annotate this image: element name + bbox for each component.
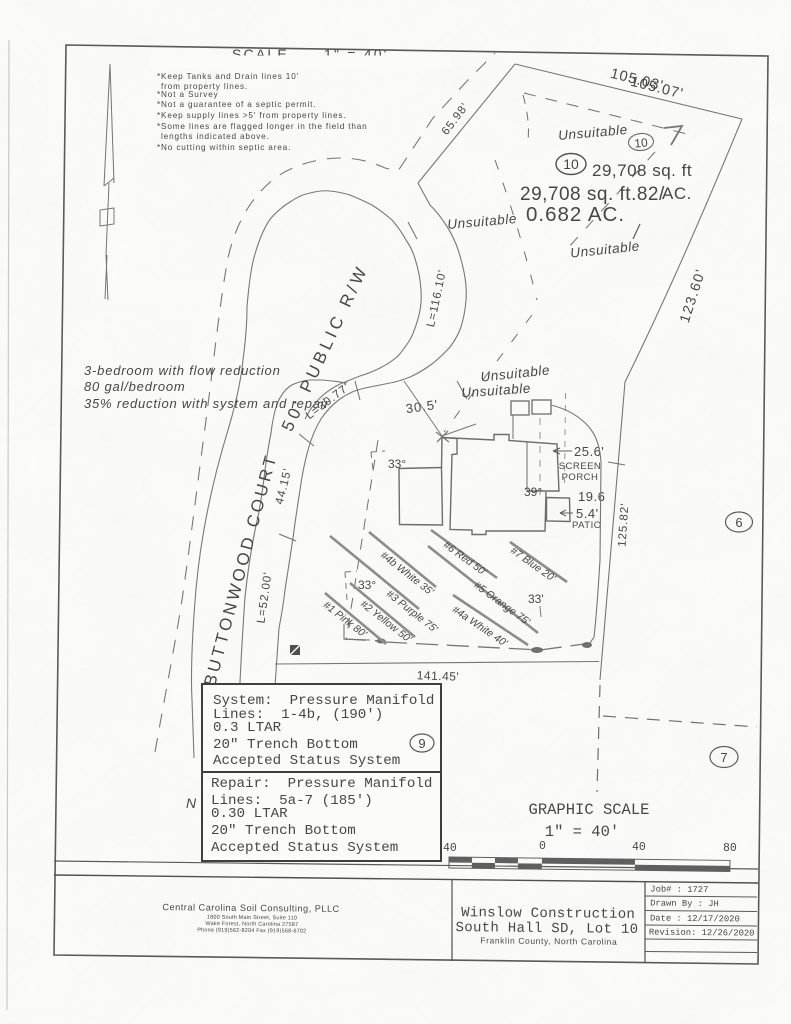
svg-text:1" = 40': 1" = 40' [545, 823, 619, 841]
svg-text:29,708 sq. ft: 29,708 sq. ft [592, 161, 692, 180]
svg-text:3-bedroom with flow reduction: 3-bedroom with flow reduction [84, 363, 281, 378]
svg-text:*Not a guarantee of a septic p: *Not a guarantee of a septic permit. [157, 100, 316, 109]
svg-text:0.3 LTAR: 0.3 LTAR [213, 720, 282, 736]
svg-text:Central Carolina Soil Consulti: Central Carolina Soil Consulting, PLLC [162, 902, 339, 914]
svg-text:lengths indicated above.: lengths indicated above. [161, 132, 270, 141]
svg-text:*Not a Survey: *Not a Survey [157, 90, 219, 99]
svg-text:Job# : 1727: Job# : 1727 [650, 884, 708, 895]
svg-text:5.4': 5.4' [576, 506, 599, 521]
svg-text:Accepted Status System: Accepted Status System [213, 753, 400, 769]
svg-text:29,708 sq. ft.82/: 29,708 sq. ft.82/ [520, 184, 665, 205]
svg-text:AC.: AC. [662, 184, 692, 203]
svg-text:Drawn By : JH: Drawn By : JH [650, 898, 719, 909]
svg-text:Date : 12/17/2020: Date : 12/17/2020 [650, 913, 740, 924]
svg-text:10: 10 [563, 156, 579, 172]
svg-text:Franklin County, North Carolin: Franklin County, North Carolina [480, 935, 617, 946]
svg-text:7: 7 [720, 750, 727, 765]
svg-text:PATIO: PATIO [572, 520, 602, 531]
svg-text:6: 6 [735, 515, 742, 530]
svg-text:*Some lines are flagged longer: *Some lines are flagged longer in the fi… [157, 122, 368, 131]
svg-text:GRAPHIC SCALE: GRAPHIC SCALE [529, 801, 650, 819]
svg-text:40: 40 [443, 842, 457, 855]
svg-text:10: 10 [634, 135, 649, 150]
svg-text:80 gal/bedroom: 80 gal/bedroom [84, 379, 186, 394]
svg-text:33°: 33° [358, 578, 376, 592]
svg-text:*Keep Tanks and Drain lines 10: *Keep Tanks and Drain lines 10' [157, 72, 299, 81]
svg-text:20" Trench Bottom: 20" Trench Bottom [211, 823, 356, 839]
svg-text:*Keep supply lines >5' from pr: *Keep supply lines >5' from property lin… [157, 111, 346, 120]
svg-text:Phone (919)562-8204 Fax (919)5: Phone (919)562-8204 Fax (919)568-6702 [197, 927, 306, 934]
svg-text:0.682 AC.: 0.682 AC. [526, 203, 625, 226]
svg-text:141.45': 141.45' [417, 668, 460, 683]
svg-text:N: N [186, 795, 197, 811]
svg-text:80: 80 [723, 842, 737, 855]
svg-text:*No cutting within septic area: *No cutting within septic area. [157, 143, 291, 152]
svg-text:35% reduction with system and: 35% reduction with system and repair [84, 396, 330, 411]
svg-text:9: 9 [418, 736, 425, 751]
svg-text:0: 0 [539, 840, 546, 853]
svg-text:Repair: Pressure Manifold: Repair: Pressure Manifold [211, 776, 432, 792]
svg-text:Revision: 12/26/2020: Revision: 12/26/2020 [649, 927, 755, 938]
svg-text:33': 33' [528, 592, 544, 606]
svg-text:20" Trench Bottom: 20" Trench Bottom [213, 737, 358, 753]
svg-text:39°: 39° [524, 485, 542, 499]
svg-text:0.30 LTAR: 0.30 LTAR [211, 806, 288, 822]
svg-text:33°: 33° [388, 457, 406, 471]
svg-text:40: 40 [632, 841, 646, 854]
svg-text:Accepted Status System: Accepted Status System [211, 840, 398, 856]
svg-text:PORCH: PORCH [562, 472, 599, 483]
